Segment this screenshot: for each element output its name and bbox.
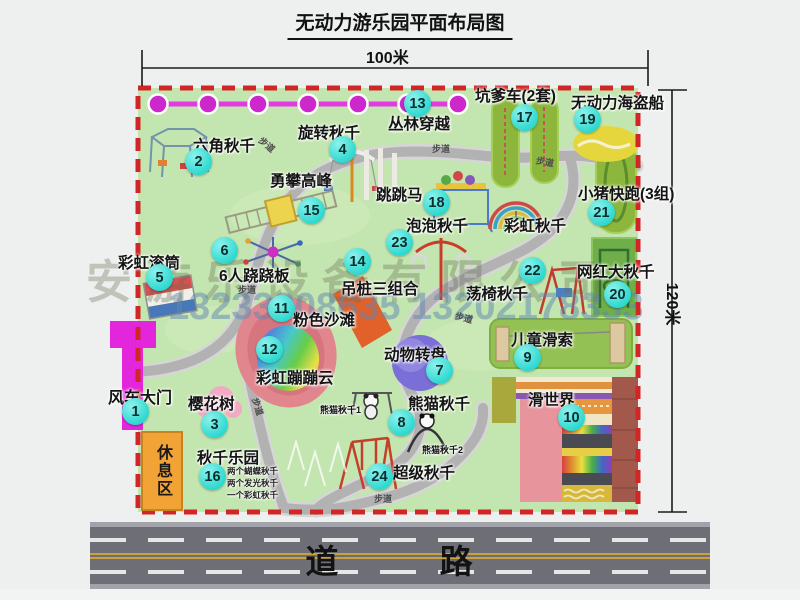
- marker-6: 6: [211, 237, 238, 264]
- road: 道 路: [90, 522, 710, 589]
- height-dimension-label: 120米: [662, 272, 686, 336]
- marker-5: 5: [146, 264, 173, 291]
- marker-24: 24: [366, 463, 393, 490]
- marker-7: 7: [426, 357, 453, 384]
- label-super-swing: 超级秋千: [393, 461, 455, 483]
- marker-14: 14: [344, 248, 371, 275]
- walkway-label: 步道: [432, 142, 450, 155]
- rest-area: 休息区: [141, 431, 183, 511]
- label-hanging-piles: 吊桩三组合: [341, 277, 419, 299]
- label-pink-beach: 粉色沙滩: [293, 308, 355, 330]
- label-panda-swing-1: 熊猫秋千1: [320, 403, 361, 416]
- label-swing-chair: 荡椅秋千: [466, 282, 528, 304]
- marker-22: 22: [519, 257, 546, 284]
- label-bubble-swing: 泡泡秋千: [406, 214, 468, 236]
- label-swing-note-3: 一个彩虹秋千: [227, 489, 278, 501]
- marker-3: 3: [201, 411, 228, 438]
- page-margin-bottom: [0, 589, 800, 600]
- label-jumping-horse: 跳跳马: [376, 183, 423, 205]
- marker-23: 23: [386, 229, 413, 256]
- marker-17: 17: [511, 104, 538, 131]
- marker-10: 10: [558, 404, 585, 431]
- road-edge-top: [90, 522, 710, 527]
- label-rainbow-cloud: 彩虹蹦蹦云: [256, 366, 334, 388]
- label-climbing-peak: 勇攀高峰: [270, 169, 332, 191]
- road-label: 道 路: [90, 535, 710, 583]
- marker-13: 13: [404, 90, 431, 117]
- walkway-label: 步道: [374, 492, 392, 505]
- marker-20: 20: [604, 281, 631, 308]
- label-rainbow-swing: 彩虹秋千: [504, 214, 566, 236]
- marker-11: 11: [268, 295, 295, 322]
- marker-15: 15: [298, 197, 325, 224]
- marker-18: 18: [423, 189, 450, 216]
- label-panda-swing-2: 熊猫秋千2: [422, 443, 463, 456]
- walkway-label: 步道: [238, 283, 256, 296]
- marker-4: 4: [329, 136, 356, 163]
- marker-2: 2: [185, 148, 212, 175]
- label-panda-swing: 熊猫秋千: [408, 392, 470, 414]
- marker-12: 12: [256, 336, 283, 363]
- label-swing-note-2: 两个发光秋千: [227, 477, 278, 489]
- label-pit-cars: 坑爹车(2套): [475, 84, 556, 106]
- marker-8: 8: [388, 409, 415, 436]
- label-net-swing: 网红大秋千: [577, 260, 655, 282]
- marker-19: 19: [574, 106, 601, 133]
- playground-layout-map: { "title": "无动力游乐园平面布局图", "dimensions": …: [0, 0, 800, 600]
- marker-21: 21: [588, 199, 615, 226]
- label-swing-note-1: 两个蝴蝶秋千: [227, 465, 278, 477]
- marker-1: 1: [122, 398, 149, 425]
- width-dimension-label: 100米: [366, 44, 409, 68]
- marker-9: 9: [514, 344, 541, 371]
- page-title: 无动力游乐园平面布局图: [287, 8, 512, 40]
- marker-16: 16: [199, 463, 226, 490]
